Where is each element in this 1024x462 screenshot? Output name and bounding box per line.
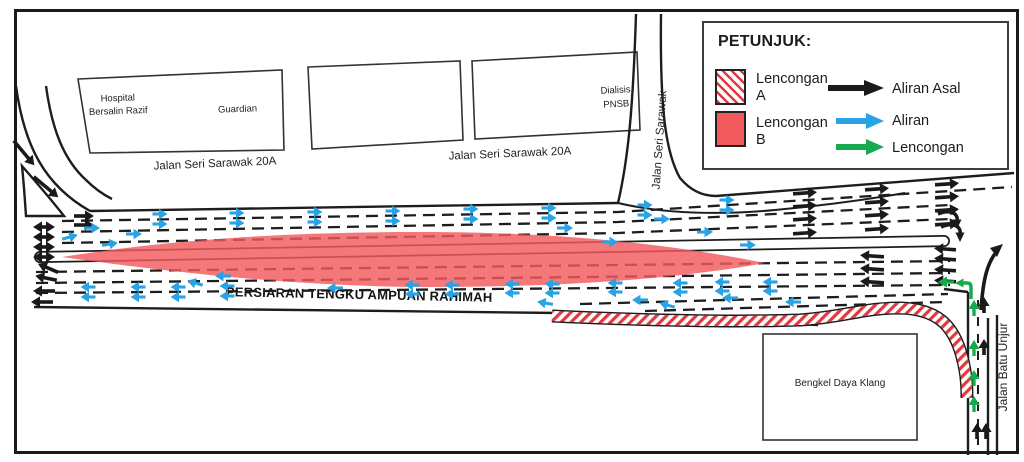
legend-label-lencongan-b: LenconganB [756,115,828,148]
building-hospital-label: Hospital Bersalin Razif [62,90,175,120]
legend-box: PETUNJUK: LenconganA LenconganB Aliran A… [702,21,1009,170]
legend-title: PETUNJUK: [718,33,811,51]
road-label-jalan-batu-unjur: Jalan Batu Unjur [996,307,1010,427]
lencongan-arrow-icon [836,137,884,157]
legend-swatch-lencongan-b [715,111,746,147]
legend-label-lencongan-a: LenconganA [756,71,828,104]
aliran-asal-arrow-icon [828,78,884,98]
aliran-arrow-icon [836,111,884,131]
road-label-jalan-seri-sarawak-20a-west: Jalan Seri Sarawak 20A [140,155,290,174]
legend-label-aliran: Aliran [892,113,929,129]
legend-swatch-lencongan-a [715,69,746,105]
legend-label-lencongan: Lencongan [892,140,964,156]
traffic-diversion-map: Hospital Bersalin Razif Guardian Dialisi… [0,0,1024,462]
building-guardian-label: Guardian [218,103,257,115]
building-bengkel-label: Bengkel Daya Klang [770,378,910,389]
legend-label-aliran-asal: Aliran Asal [892,81,961,97]
road-label-jalan-seri-sarawak-20a-east: Jalan Seri Sarawak 20A [435,145,585,164]
building-dialisis-label: Dialisis PNSB [587,83,644,114]
road-label-jalan-seri-sarawak: Jalan Seri Sarawak [649,65,671,215]
road-label-persiaran-tengku-ampuan-rahimah: PERSIARAN TENGKU AMPUAN RAHIMAH [226,284,493,305]
